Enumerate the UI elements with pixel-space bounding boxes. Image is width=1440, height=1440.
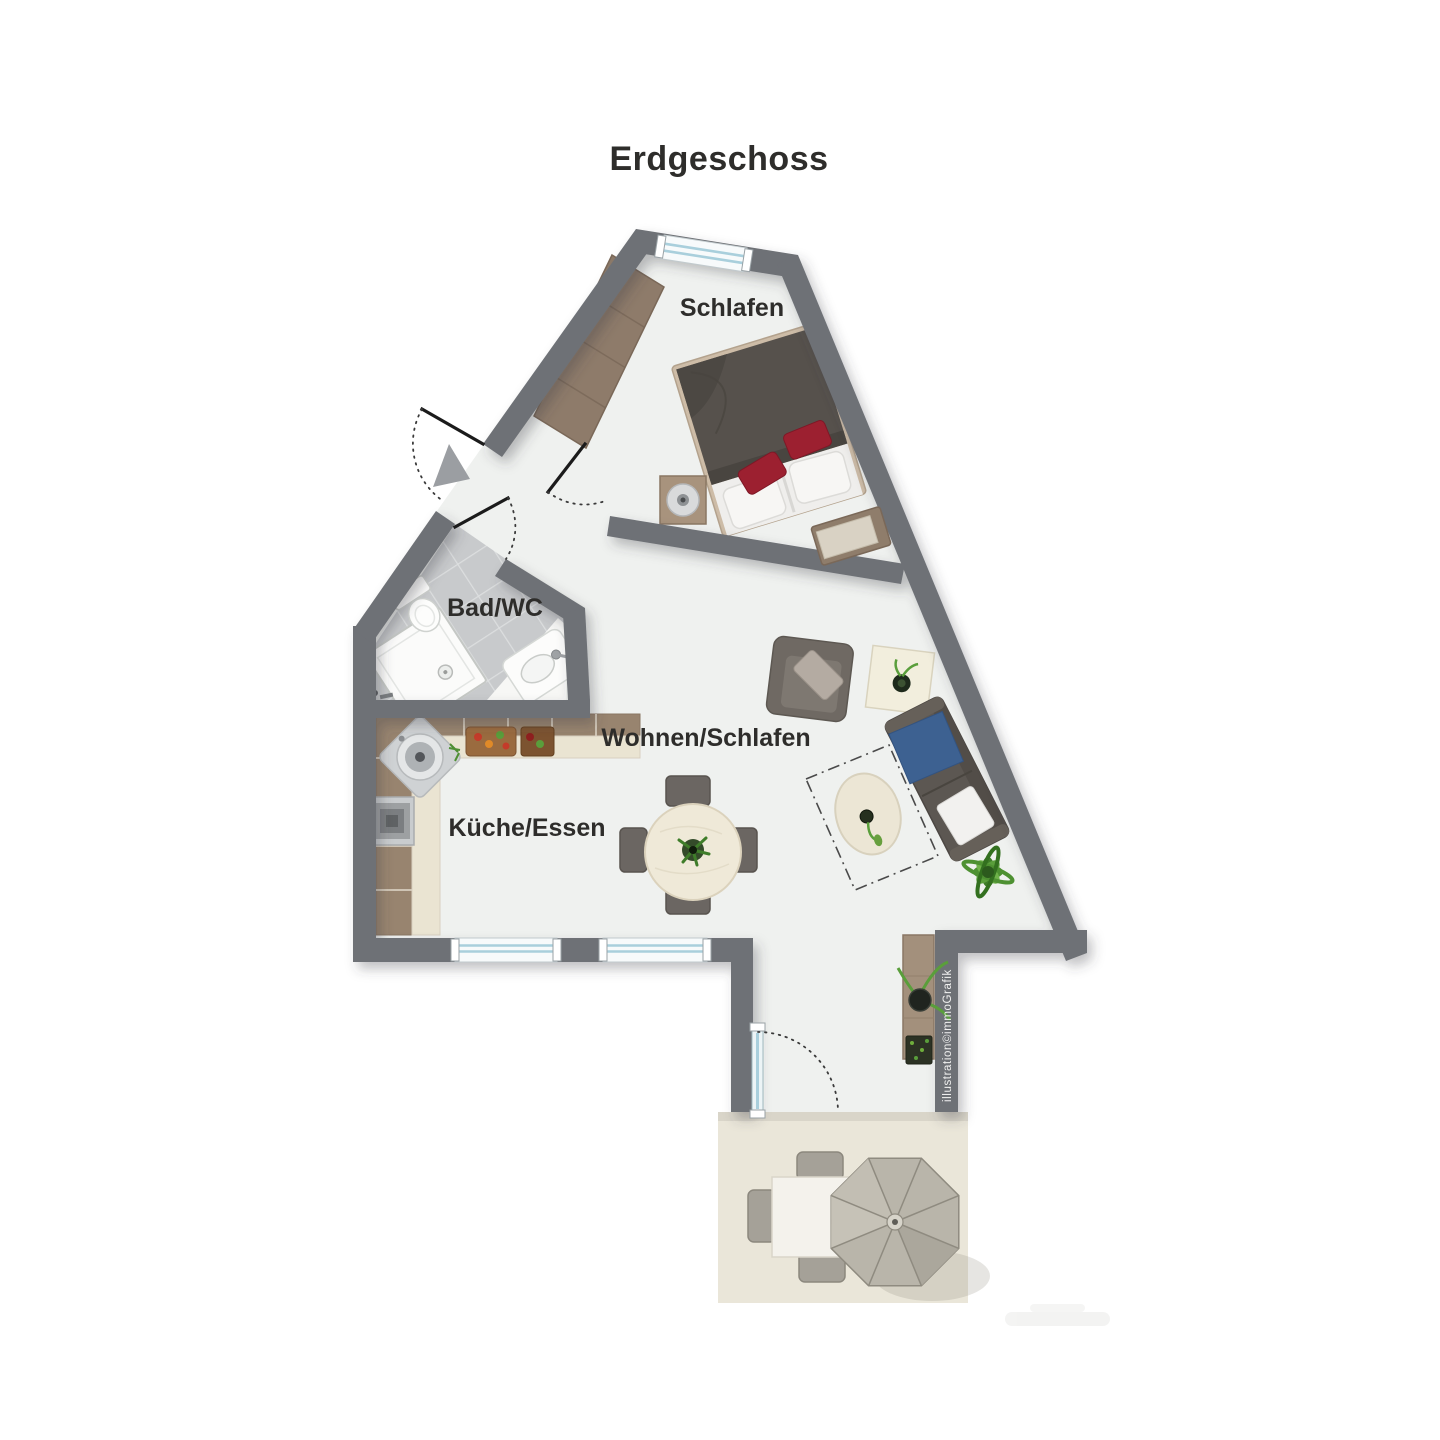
nightstand-icon <box>660 476 706 524</box>
terrace-chair-north <box>797 1152 843 1180</box>
floor-plan-canvas: Erdgeschoss Schlafen Bad/WC Wohnen/Schla… <box>0 0 1440 1440</box>
wall-left <box>353 626 376 962</box>
illustration-watermark: illustration©immoGrafik <box>942 969 954 1102</box>
room-label-schlafen: Schlafen <box>680 294 784 322</box>
room-label-kueche-essen: Küche/Essen <box>448 814 605 842</box>
counter-worktop-left <box>412 780 440 935</box>
dining-chair-north <box>666 776 710 806</box>
kitchen-window-left <box>451 938 561 962</box>
room-label-wohnen-schlafen: Wohnen/Schlafen <box>601 724 810 752</box>
parasol-icon <box>831 1158 959 1286</box>
armchair-icon <box>765 635 854 722</box>
faint-watermark-smudge <box>1005 1304 1110 1326</box>
page-title: Erdgeschoss <box>609 140 828 178</box>
dining-chair-west <box>620 828 647 872</box>
terrace <box>718 1112 990 1303</box>
room-label-bad-wc: Bad/WC <box>447 594 543 622</box>
wall-bath-south <box>353 700 590 718</box>
kitchen-window-right <box>599 938 711 962</box>
